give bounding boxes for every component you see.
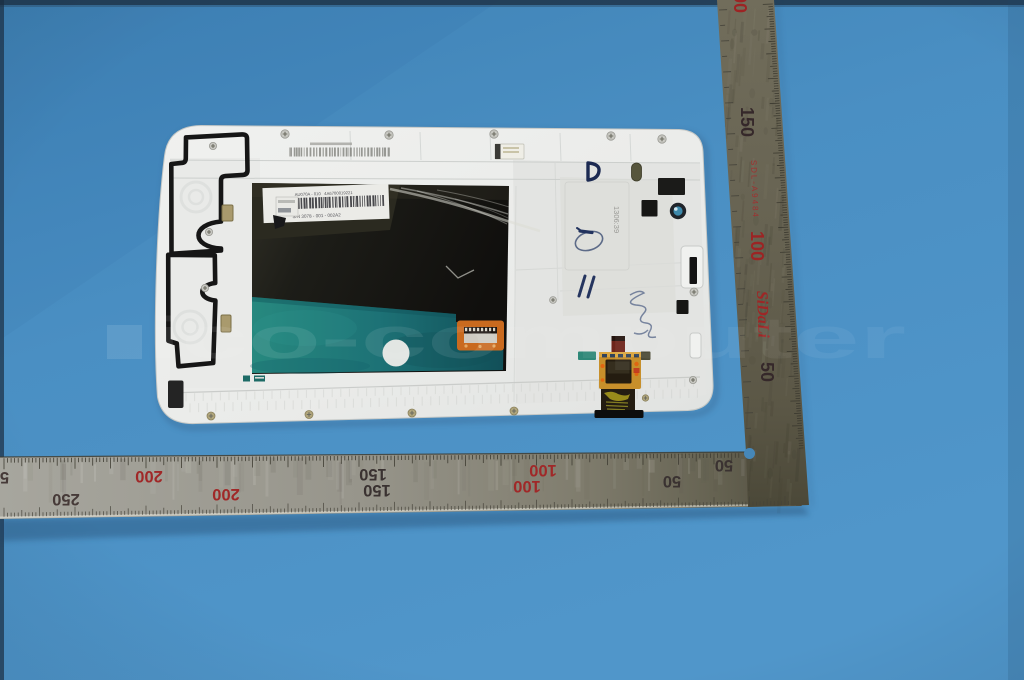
svg-text:100: 100 [747, 231, 767, 261]
svg-text:200: 200 [135, 467, 163, 485]
svg-text:200: 200 [730, 0, 750, 13]
svg-text:100: 100 [529, 461, 557, 479]
svg-text:1306:39: 1306:39 [612, 206, 621, 233]
svg-text:50: 50 [663, 472, 681, 490]
svg-text:100: 100 [513, 477, 541, 495]
svg-text:150: 150 [737, 107, 757, 137]
svg-text:50: 50 [0, 468, 9, 486]
svg-text:250: 250 [52, 490, 80, 508]
svg-text:200: 200 [212, 485, 240, 503]
svg-text:150: 150 [359, 465, 387, 483]
svg-text:50: 50 [715, 456, 733, 474]
svg-text:150: 150 [363, 481, 391, 499]
